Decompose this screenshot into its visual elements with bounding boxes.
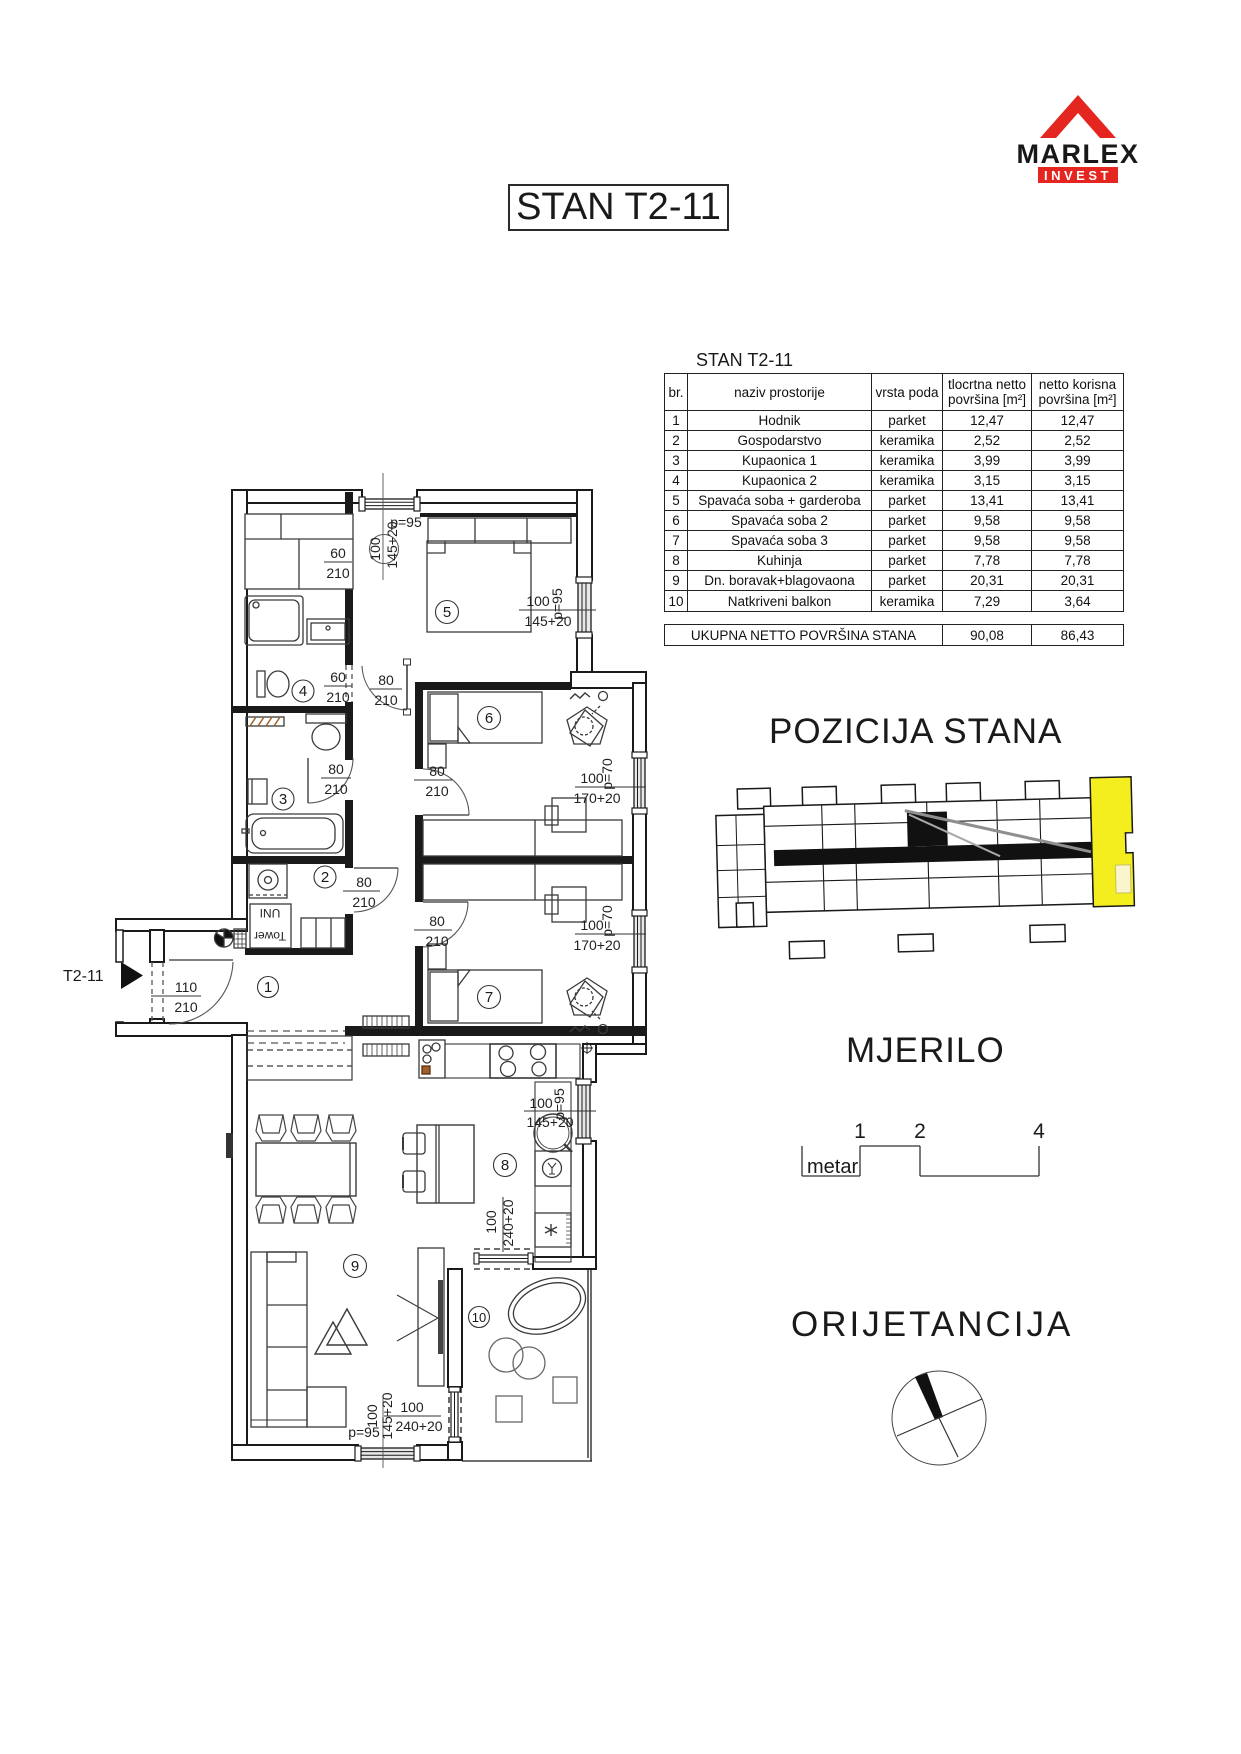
svg-text:170+20: 170+20 [573, 790, 620, 806]
svg-text:Tower: Tower [254, 929, 286, 943]
svg-text:7: 7 [485, 989, 493, 1006]
svg-text:p=95: p=95 [551, 1088, 567, 1120]
svg-text:240+20: 240+20 [395, 1418, 442, 1434]
svg-text:10: 10 [472, 1310, 486, 1325]
svg-text:210: 210 [326, 565, 350, 581]
svg-text:60: 60 [330, 669, 346, 685]
svg-text:1: 1 [264, 979, 272, 996]
svg-text:210: 210 [324, 781, 348, 797]
svg-text:p=95: p=95 [549, 588, 565, 620]
svg-text:p=70: p=70 [599, 905, 615, 937]
svg-text:80: 80 [429, 763, 445, 779]
svg-text:210: 210 [425, 933, 449, 949]
svg-text:80: 80 [429, 913, 445, 929]
svg-text:170+20: 170+20 [573, 937, 620, 953]
svg-text:5: 5 [443, 604, 451, 621]
svg-text:100: 100 [367, 537, 383, 561]
svg-text:240+20: 240+20 [500, 1199, 516, 1246]
svg-text:3: 3 [279, 791, 287, 808]
svg-text:100: 100 [529, 1095, 553, 1111]
svg-text:2: 2 [321, 869, 329, 886]
svg-text:9: 9 [351, 1258, 359, 1275]
svg-text:210: 210 [326, 689, 350, 705]
svg-text:100: 100 [483, 1210, 499, 1234]
svg-text:210: 210 [425, 783, 449, 799]
svg-text:210: 210 [174, 999, 198, 1015]
svg-text:UNI: UNI [260, 906, 281, 920]
svg-text:4: 4 [299, 683, 307, 700]
svg-text:100: 100 [364, 1404, 380, 1428]
svg-text:80: 80 [356, 874, 372, 890]
svg-text:80: 80 [378, 672, 394, 688]
svg-text:T2-11: T2-11 [63, 968, 104, 985]
svg-text:100: 100 [400, 1399, 424, 1415]
svg-text:210: 210 [374, 692, 398, 708]
svg-text:8: 8 [501, 1157, 509, 1174]
svg-text:210: 210 [352, 894, 376, 910]
svg-text:p=95: p=95 [390, 514, 422, 530]
svg-text:6: 6 [485, 710, 493, 727]
svg-text:p=70: p=70 [599, 758, 615, 790]
svg-text:110: 110 [175, 979, 198, 995]
svg-text:60: 60 [330, 545, 346, 561]
svg-text:80: 80 [328, 761, 344, 777]
svg-text:100: 100 [526, 593, 550, 609]
